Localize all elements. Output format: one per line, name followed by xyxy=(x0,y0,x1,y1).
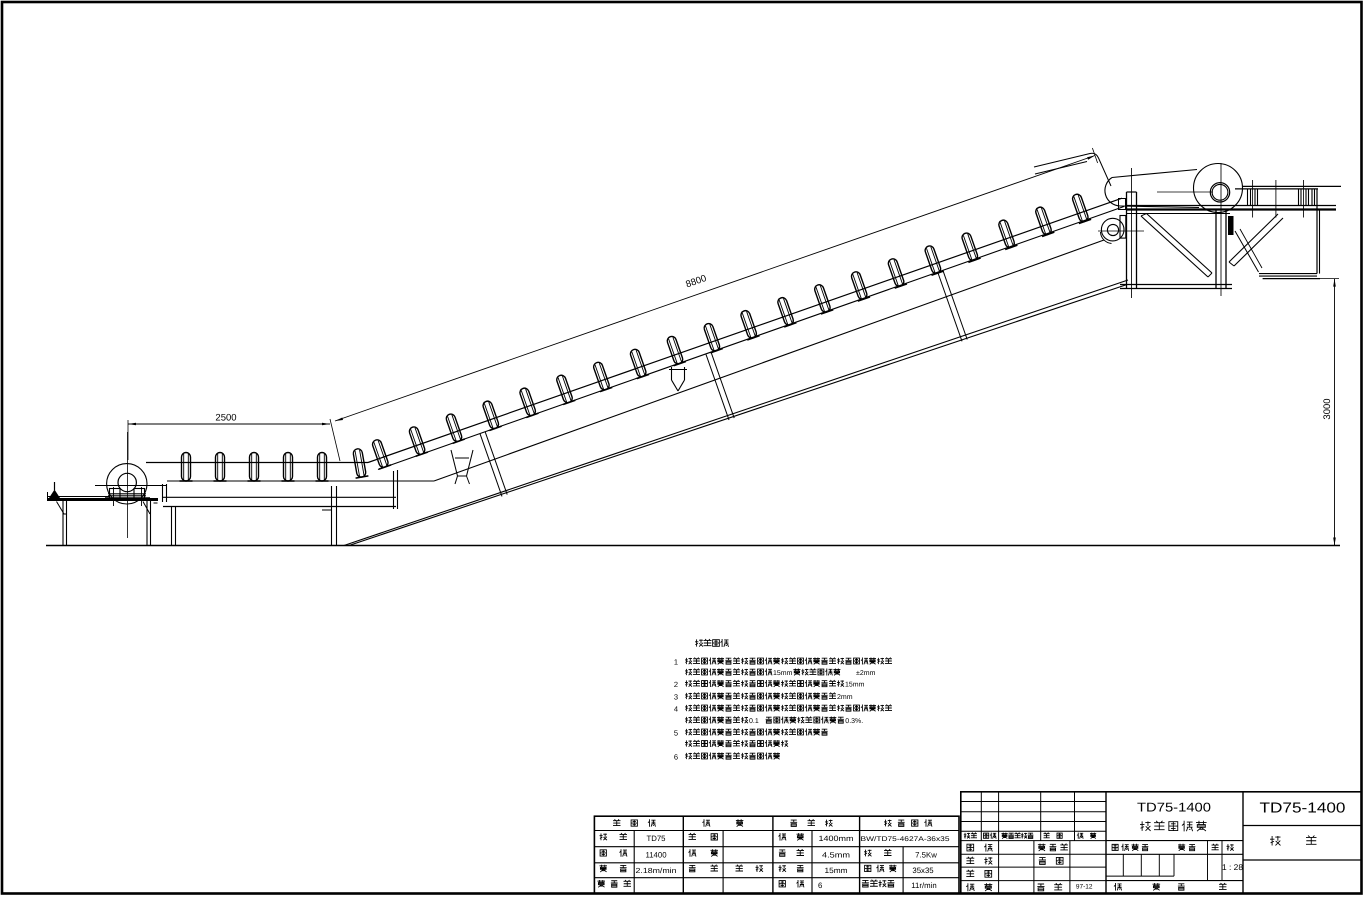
svg-text:11400: 11400 xyxy=(645,850,667,859)
svg-text:2mm: 2mm xyxy=(837,694,853,701)
svg-text:11r/min: 11r/min xyxy=(911,881,936,890)
svg-text:3: 3 xyxy=(674,693,678,702)
svg-text:2500: 2500 xyxy=(215,413,236,424)
svg-text:15mm: 15mm xyxy=(773,670,793,677)
svg-text:0.1: 0.1 xyxy=(749,718,759,725)
svg-text:3000: 3000 xyxy=(1322,398,1333,419)
svg-text:97-12: 97-12 xyxy=(1076,883,1093,890)
svg-text:TD75-1400: TD75-1400 xyxy=(1137,800,1211,815)
svg-text:2: 2 xyxy=(674,680,678,689)
svg-text:BW/TD75-4627A-36x35: BW/TD75-4627A-36x35 xyxy=(861,836,950,843)
svg-text:TD75-1400: TD75-1400 xyxy=(1260,801,1346,817)
svg-text:35x35: 35x35 xyxy=(912,866,934,875)
svg-text:15mm: 15mm xyxy=(825,866,848,875)
svg-text:0.3%.: 0.3%. xyxy=(845,718,863,725)
svg-text:2.18m/min: 2.18m/min xyxy=(636,866,677,875)
svg-text:1: 1 xyxy=(674,658,678,667)
svg-text:6: 6 xyxy=(818,881,822,890)
svg-text:±2mm: ±2mm xyxy=(856,670,876,677)
svg-text:1400mm: 1400mm xyxy=(819,834,854,843)
svg-text:TD75: TD75 xyxy=(646,834,666,843)
svg-text:1 : 28: 1 : 28 xyxy=(1222,862,1243,872)
svg-text:5: 5 xyxy=(674,729,678,738)
svg-text:15mm: 15mm xyxy=(845,682,865,689)
svg-text:4.5mm: 4.5mm xyxy=(822,850,850,859)
svg-text:4: 4 xyxy=(674,705,678,714)
svg-text:7.5Kw: 7.5Kw xyxy=(915,850,937,859)
svg-text:6: 6 xyxy=(674,753,678,762)
